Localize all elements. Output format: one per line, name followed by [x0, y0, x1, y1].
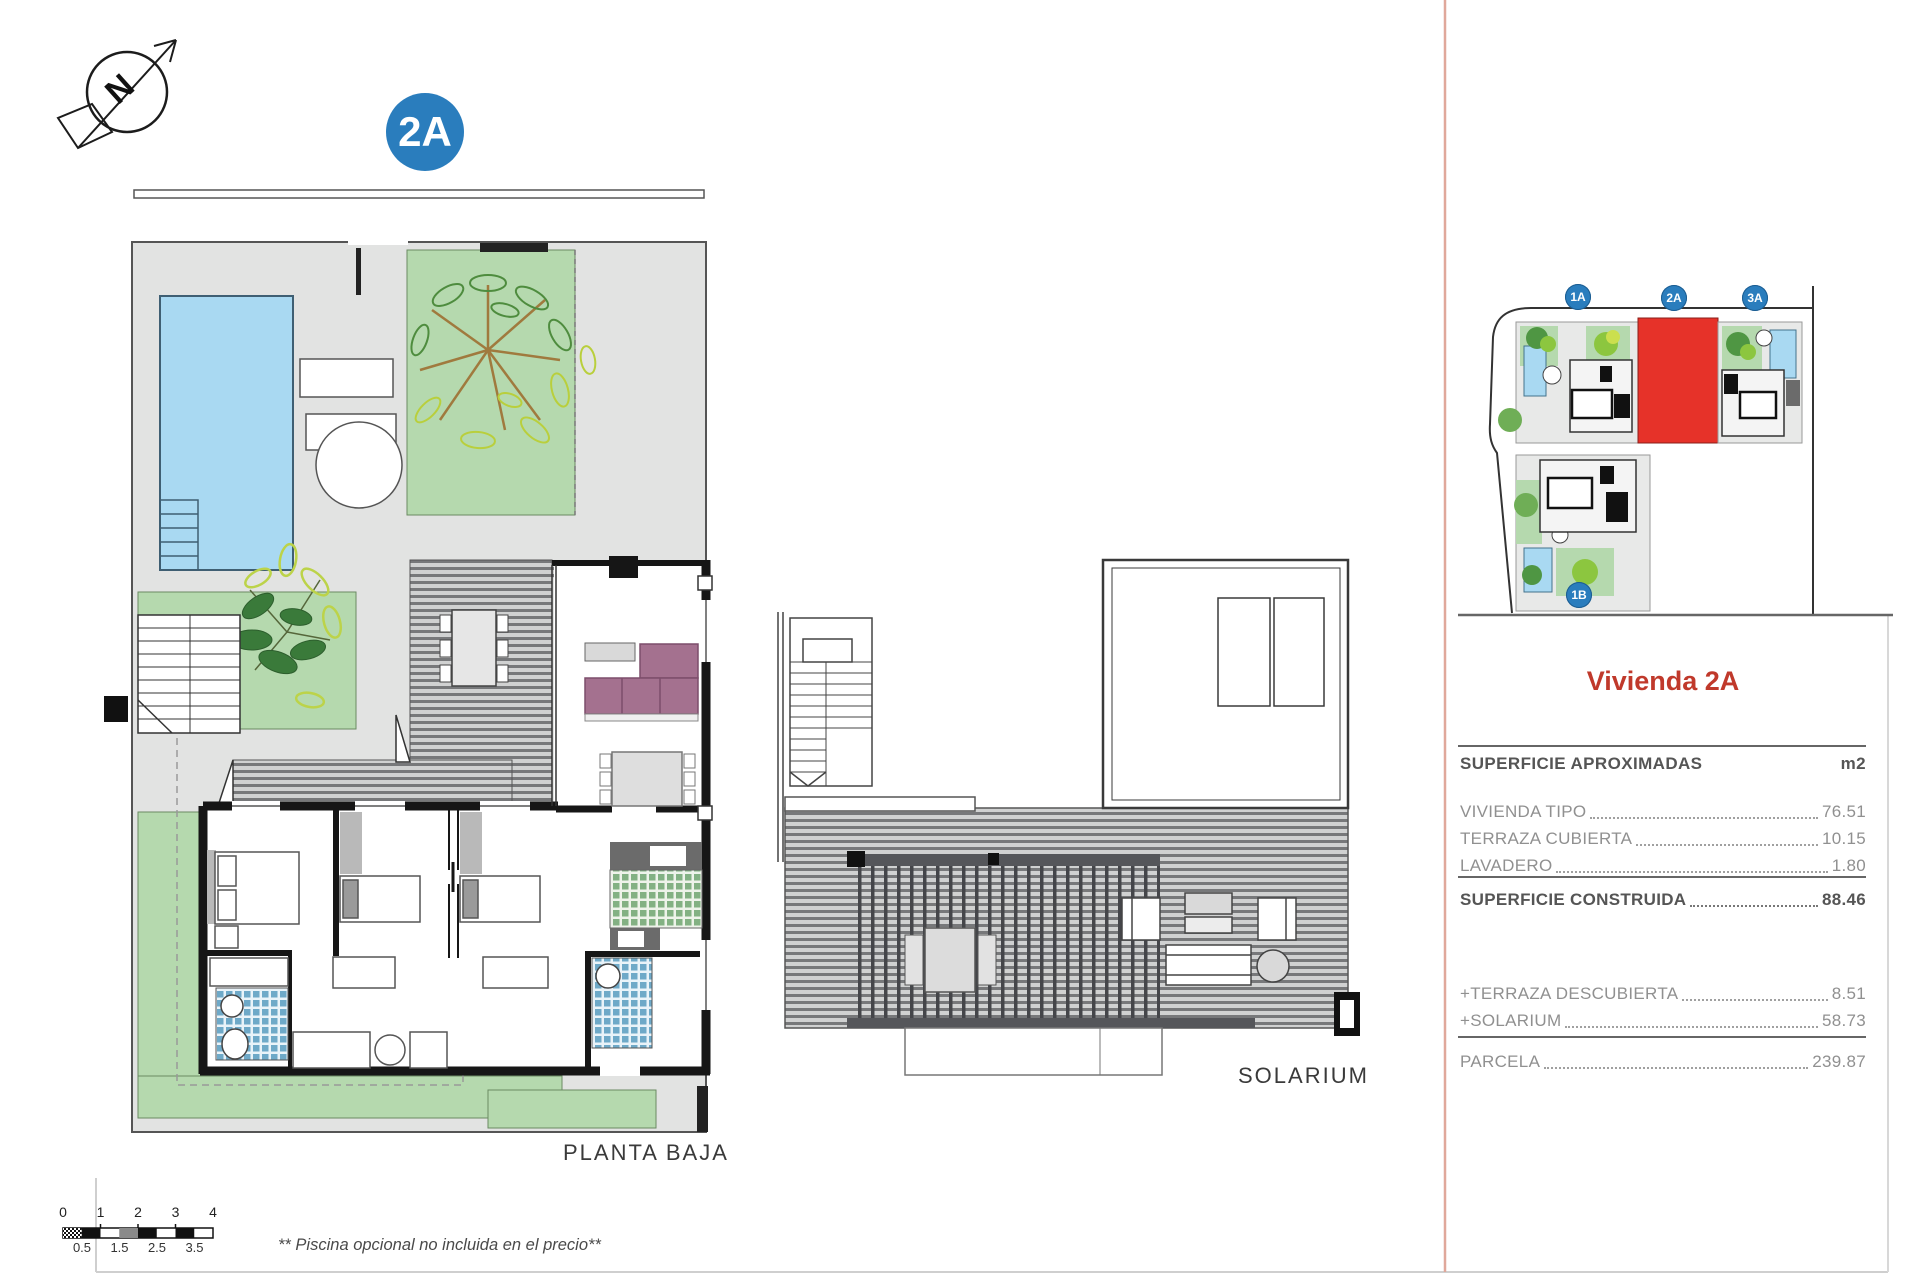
table-row: TERRAZA CUBIERTA 10.15	[1460, 829, 1866, 849]
pergola-dining-set	[905, 928, 996, 992]
scale-sublabel: 2.5	[146, 1240, 168, 1255]
leader-dots	[1682, 999, 1827, 1001]
extra-label: +SOLARIUM	[1460, 1011, 1561, 1031]
extra-label: +TERRAZA DESCUBIERTA	[1460, 984, 1678, 1004]
exterior-stairs	[104, 615, 240, 733]
extra-value: 8.51	[1832, 984, 1866, 1004]
table-parcel-row: PARCELA 239.87	[1460, 1052, 1866, 1072]
scale-label: 0	[52, 1204, 74, 1220]
leader-dots	[1636, 844, 1818, 846]
leader-dots	[1544, 1067, 1808, 1069]
leader-dots	[1565, 1026, 1818, 1028]
interior-dining-table	[600, 752, 695, 806]
scale-label: 1	[90, 1204, 112, 1220]
total-value: 88.46	[1822, 890, 1866, 910]
sofa	[585, 643, 698, 721]
total-label: SUPERFICIE CONSTRUIDA	[1460, 890, 1686, 910]
row-label: TERRAZA CUBIERTA	[1460, 829, 1632, 849]
bathroom-2	[592, 958, 652, 1048]
row-value: 76.51	[1822, 802, 1866, 822]
row-value: 10.15	[1822, 829, 1866, 849]
scale-label: 3	[165, 1204, 187, 1220]
row-value: 1.80	[1832, 856, 1866, 876]
parcel-label: PARCELA	[1460, 1052, 1540, 1072]
scale-sublabel: 1.5	[109, 1240, 131, 1255]
scale-sublabel: 0.5	[71, 1240, 93, 1255]
extra-value: 58.73	[1822, 1011, 1866, 1031]
solarium-label: SOLARIUM	[1238, 1063, 1369, 1089]
leader-dots	[1556, 871, 1827, 873]
solarium-plan	[778, 560, 1360, 1075]
row-label: LAVADERO	[1460, 856, 1552, 876]
stair-room	[1103, 560, 1348, 808]
site-badge-2a: 2A	[1661, 285, 1687, 311]
table-extra-row: +SOLARIUM 58.73	[1460, 1011, 1866, 1031]
site-badge-1b: 1B	[1566, 582, 1592, 608]
plan-badge-2a: 2A	[386, 93, 464, 171]
panel-title: Vivienda 2A	[1458, 666, 1868, 697]
table-header-unit: m2	[1841, 754, 1866, 774]
floorplan-drawing	[0, 0, 1920, 1280]
plot-2a-highlight	[1638, 318, 1718, 443]
scale-label: 4	[202, 1204, 224, 1220]
row-label: VIVIENDA TIPO	[1460, 802, 1586, 822]
scale-sublabel: 3.5	[184, 1240, 206, 1255]
scale-bar	[63, 1224, 213, 1238]
outdoor-dining-table	[440, 610, 508, 686]
floorplan-sheet: 2A N PLANTA BAJA SOLARIUM 1A 2A 3A 1B Vi…	[0, 0, 1920, 1280]
table-total-row: SUPERFICIE CONSTRUIDA 88.46	[1460, 890, 1866, 910]
scale-label: 2	[127, 1204, 149, 1220]
site-map	[1490, 286, 1813, 615]
plot-1a	[1498, 322, 1638, 443]
title-underline	[134, 190, 704, 198]
parcel-value: 239.87	[1812, 1052, 1866, 1072]
table-extra-row: +TERRAZA DESCUBIERTA 8.51	[1460, 984, 1866, 1004]
bathroom-1	[210, 958, 288, 1060]
table-header: SUPERFICIE APROXIMADAS m2	[1460, 754, 1866, 774]
plot-3a	[1718, 322, 1802, 443]
leader-dots	[1590, 817, 1818, 819]
site-badge-3a: 3A	[1742, 285, 1768, 311]
site-badge-1a: 1A	[1565, 284, 1591, 310]
table-row: VIVIENDA TIPO 76.51	[1460, 802, 1866, 822]
pool-footnote: ** Piscina opcional no incluida en el pr…	[278, 1236, 601, 1255]
planta-baja-label: PLANTA BAJA	[563, 1140, 729, 1166]
table-row: LAVADERO 1.80	[1460, 856, 1866, 876]
leader-dots	[1690, 905, 1818, 907]
table-header-label: SUPERFICIE APROXIMADAS	[1460, 754, 1702, 774]
planta-baja-plan	[104, 239, 712, 1132]
